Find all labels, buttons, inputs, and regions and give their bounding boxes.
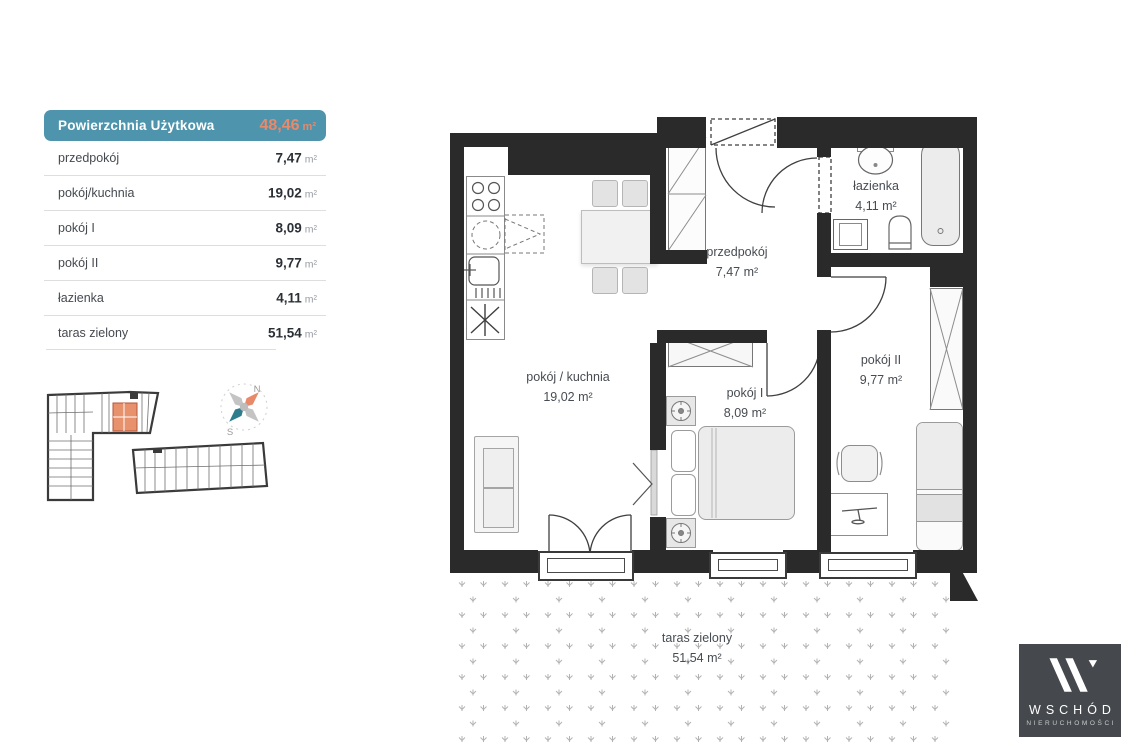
wall-segment (650, 343, 666, 450)
wall-segment (913, 550, 977, 573)
legend-title: Powierzchnia Użytkowa (44, 118, 215, 133)
logo-brand-text: WSCHÓD (1019, 703, 1121, 717)
wall-segment (657, 117, 706, 148)
wall-segment (817, 213, 831, 277)
washing-machine-door (839, 223, 862, 246)
hall-wardrobe (668, 136, 706, 252)
logo-w-icon (1042, 655, 1098, 695)
wall-segment (930, 253, 977, 287)
bathroom-door (762, 157, 831, 213)
area-legend: Powierzchnia Użytkowa 48,46m² przedpokój… (44, 110, 326, 350)
bed-pillow (671, 430, 696, 472)
single-bed (916, 422, 963, 551)
toilet-icon (889, 216, 911, 249)
room-label-living-kitchen: pokój / kuchnia19,02 m² (526, 367, 609, 407)
wall-segment (817, 131, 831, 157)
window-room2 (819, 552, 917, 579)
desk (830, 493, 888, 536)
compass-south-label: S (227, 427, 233, 438)
balcony-french-doors (549, 515, 631, 556)
legend-header: Powierzchnia Użytkowa 48,46m² (44, 110, 326, 141)
wall-segment (450, 133, 464, 573)
room-name: przedpokój (58, 151, 119, 165)
wall-segment (963, 117, 977, 573)
nightstand (666, 396, 696, 426)
total-area-value: 48,46m² (260, 110, 317, 143)
wall-segment (450, 550, 538, 573)
nightstand (666, 518, 696, 548)
legend-row: pokój/kuchnia 19,02m² (44, 176, 326, 211)
compass-north-label: N (254, 384, 261, 395)
entrance-door (711, 119, 775, 207)
room-name: pokój II (58, 256, 98, 270)
room-name: pokój/kuchnia (58, 186, 134, 200)
room2-door (831, 277, 886, 332)
wall-segment (650, 133, 666, 253)
legend-row: taras zielony 51,54m² (44, 316, 326, 350)
room-label-room2: pokój II9,77 m² (860, 350, 902, 390)
room-area: 19,02m² (268, 186, 317, 201)
balcony-door-sill (538, 551, 634, 581)
room-area: 9,77m² (275, 256, 317, 271)
room-name: taras zielony (58, 326, 128, 340)
wall-segment (632, 550, 713, 573)
dining-table (581, 210, 658, 264)
room2-wardrobe (930, 288, 963, 410)
room-area: 51,54m² (268, 326, 317, 341)
room-label-bathroom: łazienka4,11 m² (853, 176, 899, 216)
dining-chair (592, 267, 618, 294)
dining-chair (622, 267, 648, 294)
wall-segment (508, 133, 657, 175)
sliding-door (633, 450, 657, 515)
wall-segment (817, 330, 831, 563)
legend-row: pokój II 9,77m² (44, 246, 326, 281)
double-bed-mattress (698, 426, 795, 520)
highlighted-unit (113, 403, 137, 431)
wall-segment (777, 117, 977, 148)
room-label-room1: pokój I8,09 m² (724, 383, 766, 423)
room-name: łazienka (58, 291, 104, 305)
wall-segment (950, 573, 978, 601)
corner-cabinet-icon (505, 215, 544, 253)
wall-segment (650, 250, 707, 264)
building-2-core (153, 445, 162, 453)
wall-segment (657, 330, 767, 343)
legend-row: łazienka 4,11m² (44, 281, 326, 316)
wall-segment (783, 550, 823, 573)
building-1-core (130, 392, 138, 399)
bed-pillow (671, 474, 696, 516)
sofa-cushion (483, 448, 514, 488)
dining-chair (592, 180, 618, 207)
room-area: 7,47m² (275, 151, 317, 166)
room-label-hall: przedpokój7,47 m² (706, 242, 767, 282)
dining-chair (622, 180, 648, 207)
room-name: pokój I (58, 221, 95, 235)
compass-icon: N S (215, 378, 275, 440)
room-area: 4,11m² (276, 291, 317, 306)
sofa-cushion (483, 488, 514, 528)
brand-logo: WSCHÓD NIERUCHOMOŚCI (1019, 644, 1121, 737)
logo-subtitle-text: NIERUCHOMOŚCI (1019, 720, 1121, 727)
room-area: 8,09m² (275, 221, 317, 236)
room1-door (767, 343, 820, 396)
desk-chair (841, 445, 878, 482)
room-label-terrace: taras zielony51,54 m² (662, 628, 732, 668)
legend-row: przedpokój 7,47m² (44, 141, 326, 176)
kitchen-unit (466, 176, 505, 340)
legend-row: pokój I 8,09m² (44, 211, 326, 246)
window-room1 (709, 552, 787, 579)
bathtub (921, 139, 960, 246)
